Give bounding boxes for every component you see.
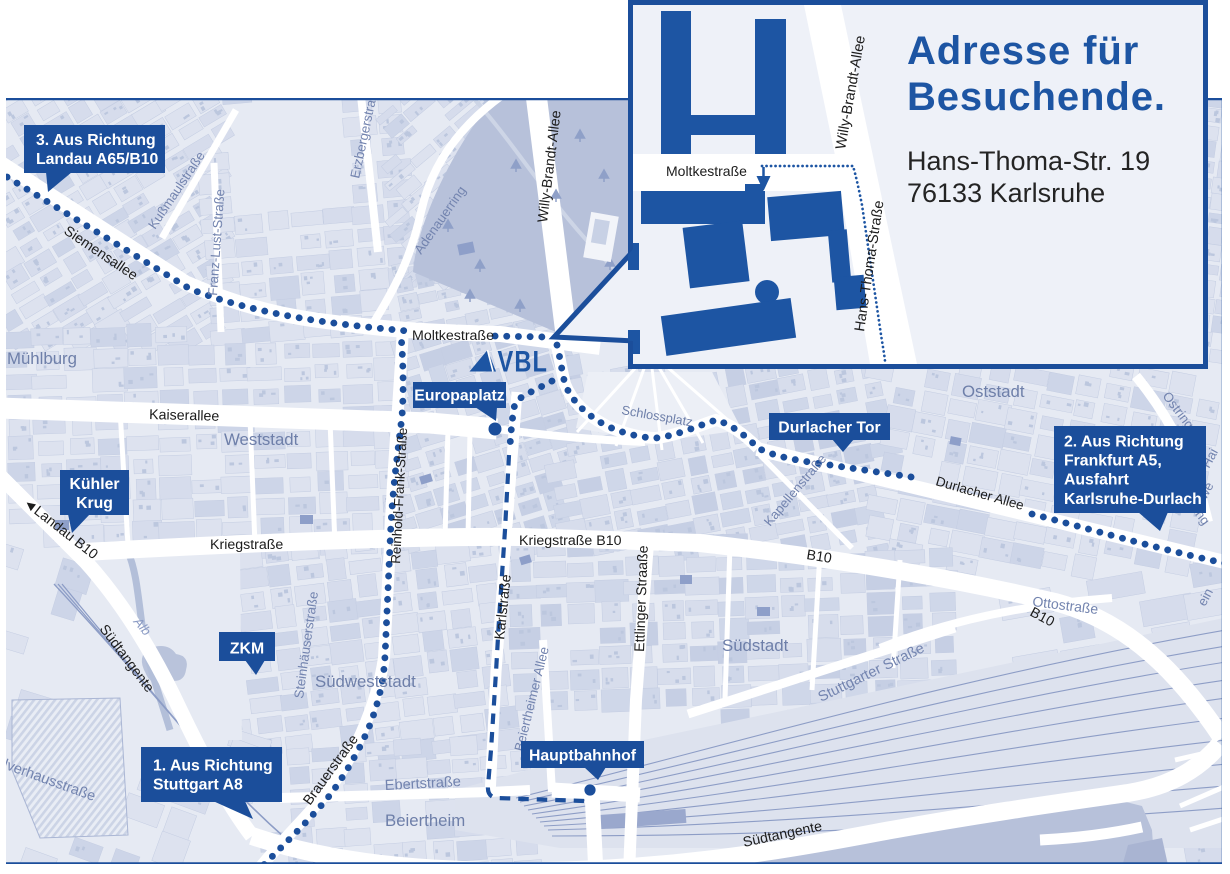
svg-text:2. Aus Richtung: 2. Aus Richtung xyxy=(1064,433,1184,450)
svg-text:Beiertheim: Beiertheim xyxy=(385,811,465,830)
svg-text:Moltkestraße: Moltkestraße xyxy=(412,328,494,344)
svg-text:76133 Karlsruhe: 76133 Karlsruhe xyxy=(907,178,1105,208)
svg-text:Besuchende.: Besuchende. xyxy=(907,75,1166,119)
svg-text:Stuttgart A8: Stuttgart A8 xyxy=(153,777,243,794)
svg-text:Frankfurt A5,: Frankfurt A5, xyxy=(1064,453,1162,470)
svg-text:Karlsruhe-Durlach: Karlsruhe-Durlach xyxy=(1064,491,1202,508)
svg-text:Südweststadt: Südweststadt xyxy=(315,672,416,691)
svg-text:Hauptbahnhof: Hauptbahnhof xyxy=(529,747,637,764)
svg-text:3. Aus Richtung: 3. Aus Richtung xyxy=(36,132,156,149)
svg-text:ZKM: ZKM xyxy=(230,640,264,657)
svg-text:Kühler: Kühler xyxy=(69,476,119,493)
svg-text:Weststadt: Weststadt xyxy=(224,430,299,449)
svg-text:Durlacher Tor: Durlacher Tor xyxy=(778,419,880,436)
svg-text:Oststadt: Oststadt xyxy=(962,382,1025,401)
svg-text:Hans-Thoma-Str. 19: Hans-Thoma-Str. 19 xyxy=(907,146,1150,176)
svg-text:1. Aus Richtung: 1. Aus Richtung xyxy=(153,758,273,775)
svg-text:VBL: VBL xyxy=(498,345,549,378)
svg-text:Südstadt: Südstadt xyxy=(722,636,789,655)
svg-text:Europaplatz: Europaplatz xyxy=(414,388,505,405)
svg-text:Moltkestraße: Moltkestraße xyxy=(666,163,747,179)
svg-text:Adresse für: Adresse für xyxy=(907,29,1139,73)
svg-text:Ausfahrt: Ausfahrt xyxy=(1064,472,1130,489)
svg-text:Mühlburg: Mühlburg xyxy=(7,349,77,368)
svg-text:Landau A65/B10: Landau A65/B10 xyxy=(36,151,159,168)
svg-text:Kriegstraße: Kriegstraße xyxy=(210,537,283,553)
svg-text:Kriegstraße B10: Kriegstraße B10 xyxy=(519,533,622,549)
svg-text:Kaiserallee: Kaiserallee xyxy=(149,407,220,425)
svg-text:Krug: Krug xyxy=(76,495,113,512)
